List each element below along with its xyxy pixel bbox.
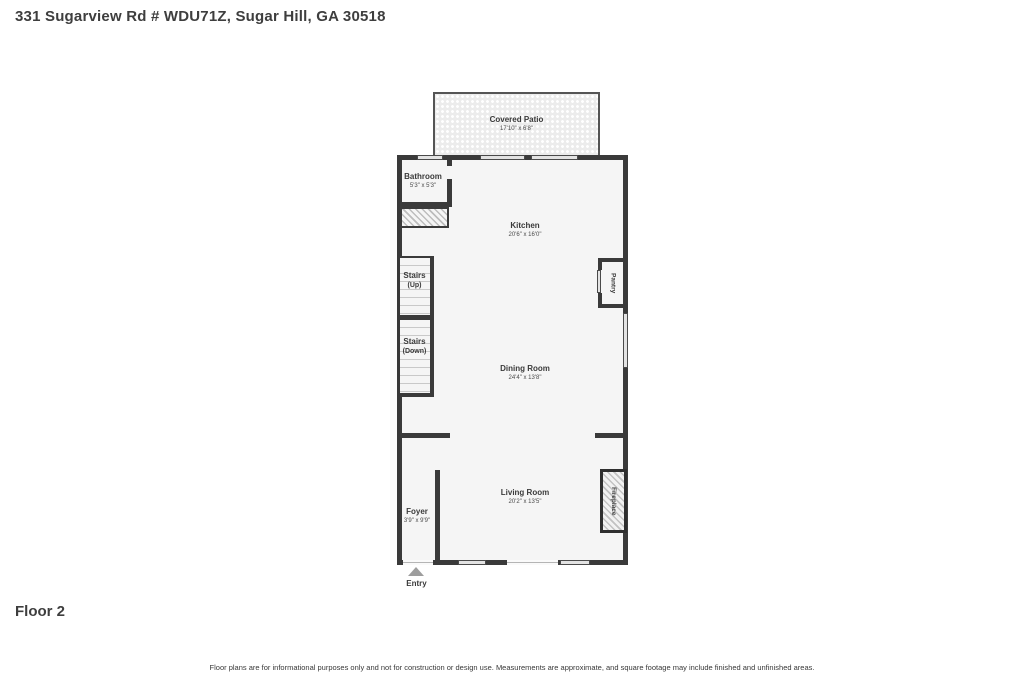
wall-divider-left-stub: [397, 433, 450, 438]
utility-hatched-area: [400, 207, 449, 228]
window-living-left: [458, 560, 486, 565]
window-kitchen-right: [531, 155, 578, 160]
opening-living-center: [507, 560, 558, 565]
stairs-down-name: Stairs: [398, 337, 431, 347]
covered-patio-name: Covered Patio: [433, 115, 600, 125]
kitchen-dims: 20'6" x 16'0": [460, 232, 590, 240]
room-label-dining-room: Dining Room 24'4" x 13'8": [460, 364, 590, 383]
wall-pantry-top: [598, 258, 628, 262]
room-label-kitchen: Kitchen 20'6" x 16'0": [460, 221, 590, 240]
foyer-name: Foyer: [397, 507, 437, 517]
pantry-door: [597, 270, 601, 293]
foyer-dims: 3'9" x 9'9": [397, 518, 437, 526]
wall-stairs-down-bottom: [397, 393, 434, 397]
stairs-up-direction: (Up): [398, 282, 431, 291]
window-bathroom: [417, 155, 443, 160]
window-dining-right: [623, 313, 628, 368]
wall-pantry-left-stub-bottom: [598, 293, 602, 308]
wall-divider-right-stub: [595, 433, 628, 438]
room-label-fireplace: Fireplace: [604, 473, 623, 529]
room-label-foyer: Foyer 3'9" x 9'9": [397, 507, 437, 526]
wall-bathroom-right: [447, 179, 452, 207]
kitchen-name: Kitchen: [460, 221, 590, 231]
bathroom-dims: 5'3" x 5'3": [399, 183, 447, 191]
room-label-living-room: Living Room 20'2" x 13'5": [460, 488, 590, 507]
covered-patio-dims: 17'10" x 6'8": [433, 126, 600, 134]
dining-room-name: Dining Room: [460, 364, 590, 374]
stairs-down-direction: (Down): [398, 348, 431, 357]
entry-door-opening: [403, 560, 433, 565]
living-room-name: Living Room: [460, 488, 590, 498]
wall-stairs-down-right: [430, 320, 434, 397]
living-room-dims: 20'2" x 13'5": [460, 499, 590, 507]
disclaimer-text: Floor plans are for informational purpos…: [0, 663, 1024, 672]
wall-bathroom-right-stub: [447, 155, 452, 166]
entry-arrow-icon: [408, 567, 424, 576]
room-label-bathroom: Bathroom 5'3" x 5'3": [399, 172, 447, 191]
room-label-pantry: Pantry: [604, 263, 622, 303]
room-label-covered-patio: Covered Patio 17'10" x 6'8": [433, 115, 600, 134]
room-label-stairs-down: Stairs (Down): [398, 337, 431, 357]
wall-pantry-bottom: [598, 304, 628, 308]
dining-room-dims: 24'4" x 13'8": [460, 375, 590, 383]
window-kitchen-left: [480, 155, 525, 160]
stairs-up-name: Stairs: [398, 271, 431, 281]
bathroom-name: Bathroom: [399, 172, 447, 182]
entry-label: Entry: [399, 579, 434, 588]
floor-label: Floor 2: [15, 603, 65, 620]
page-title: 331 Sugarview Rd # WDU71Z, Sugar Hill, G…: [15, 8, 386, 25]
wall-pantry-left-stub-top: [598, 258, 602, 270]
room-label-stairs-up: Stairs (Up): [398, 271, 431, 291]
window-living-right: [560, 560, 590, 565]
floor-plan-page: 331 Sugarview Rd # WDU71Z, Sugar Hill, G…: [0, 0, 1024, 682]
